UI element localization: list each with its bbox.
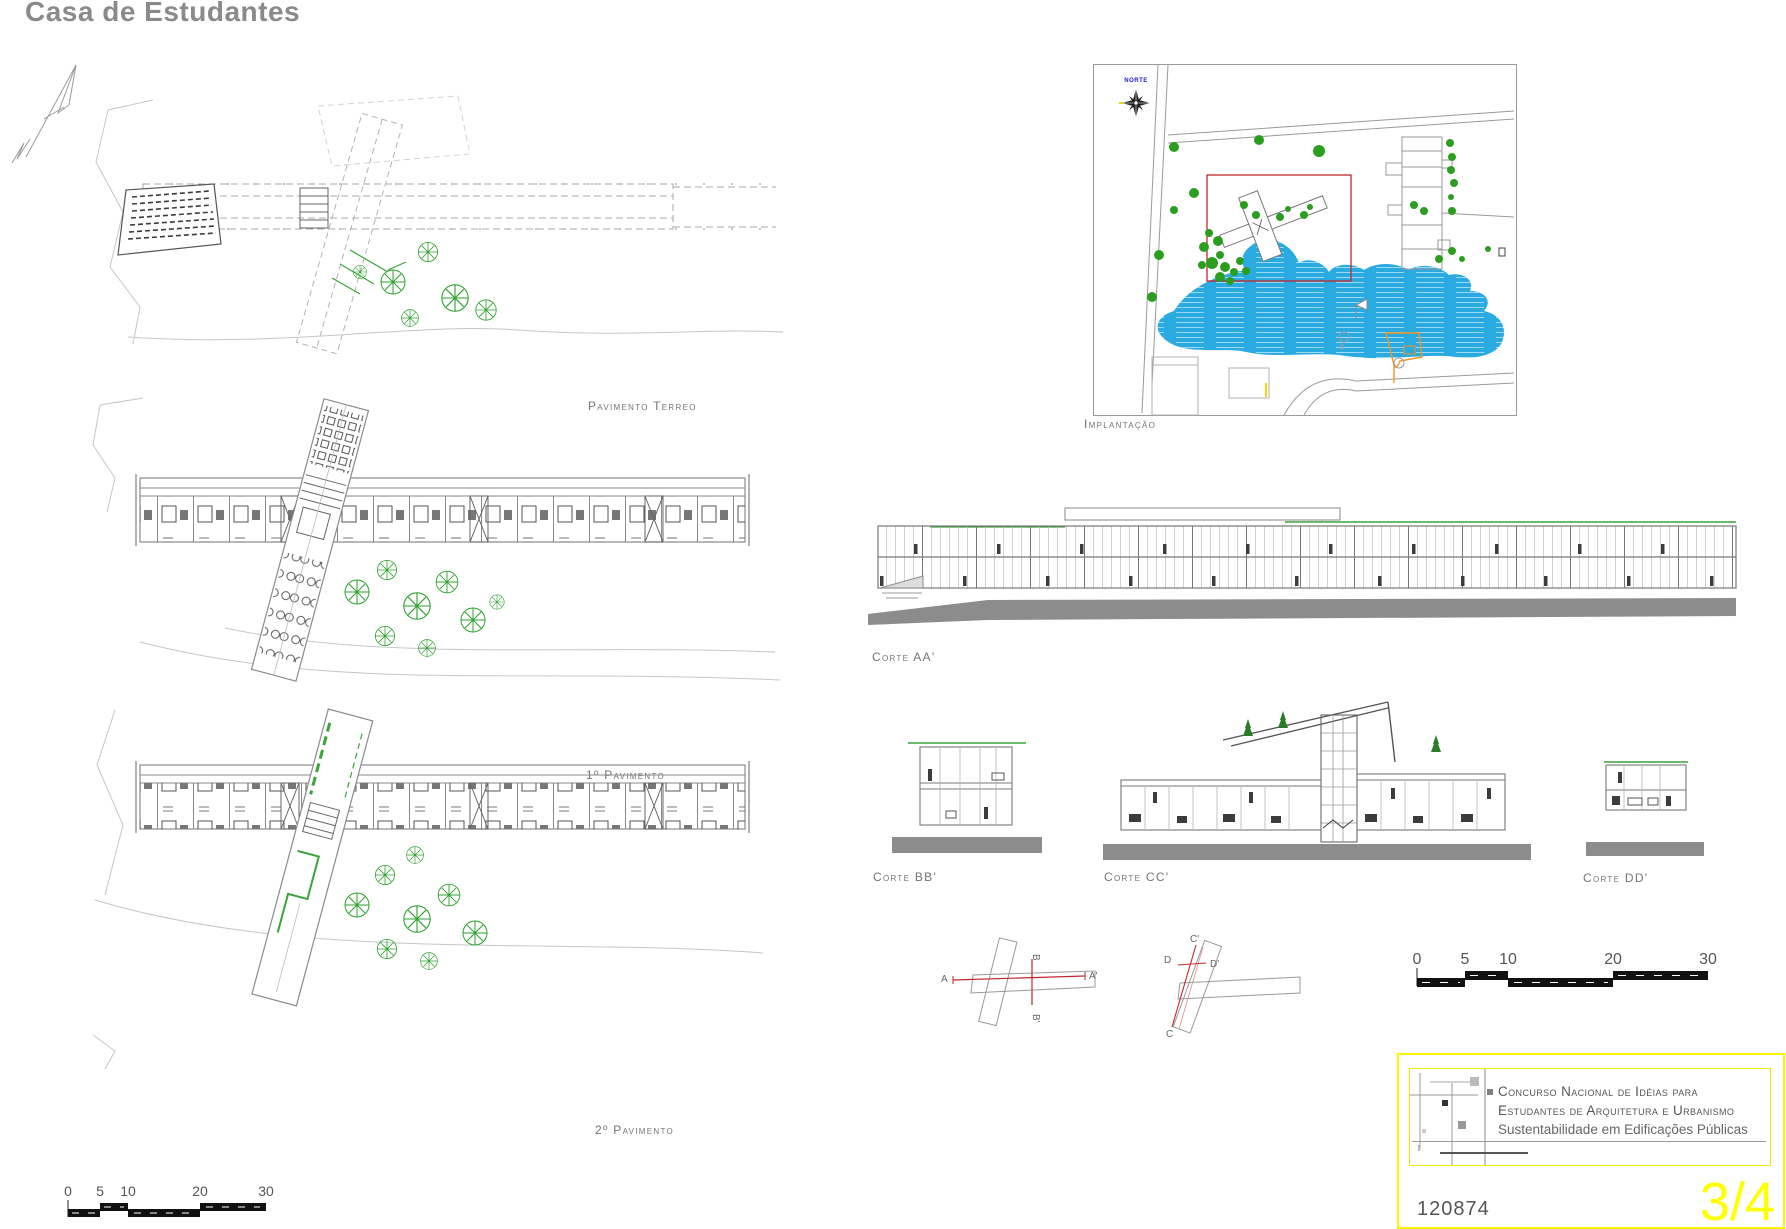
keyplan-label-d: D xyxy=(1164,955,1171,966)
competition-title-line2: Estudantes de Arquitetura e Urbanismo xyxy=(1498,1101,1766,1120)
competition-subtitle: Sustentabilidade em Edificações Públicas xyxy=(1498,1120,1766,1139)
scale-tick-0: 0 xyxy=(1413,951,1422,968)
keyplan-label-b-prime: B' xyxy=(1030,1014,1041,1023)
plan-primeiro-drawing xyxy=(85,390,785,705)
scale-tick-30: 30 xyxy=(1699,951,1717,968)
label-segundo-pavimento: 2º Pavimento xyxy=(595,1123,674,1137)
scale-tick-20: 20 xyxy=(192,1183,208,1199)
site-plan-drawing: NORTE xyxy=(1094,65,1516,415)
section-cc-drawing xyxy=(1093,688,1541,866)
competition-title-line1: Concurso Nacional de Idéias para xyxy=(1498,1082,1766,1101)
scale-tick-20: 20 xyxy=(1604,951,1622,968)
section-aa-drawing xyxy=(868,498,1748,633)
keyplan-label-a: A xyxy=(941,974,948,985)
presentation-board: Casa de Estudantes xyxy=(0,0,1786,1229)
scalebar-bottom-left: 0 5 10 20 30 xyxy=(40,1180,275,1226)
label-corte-bb: Corte BB' xyxy=(873,870,937,884)
compass-rose-icon xyxy=(1119,89,1150,117)
scale-tick-10: 10 xyxy=(120,1183,136,1199)
section-dd-drawing xyxy=(1578,738,1710,864)
keyplan-label-b: B xyxy=(1030,954,1041,961)
titleblock: Concurso Nacional de Idéias para Estudan… xyxy=(1397,1053,1785,1229)
scale-tick-0: 0 xyxy=(64,1183,72,1199)
label-corte-aa: Corte AA' xyxy=(872,650,935,664)
proposed-building-footprint xyxy=(1210,170,1337,273)
keyplan-ab: A A' B B' xyxy=(933,933,1108,1031)
existing-building xyxy=(1386,137,1452,269)
plan-segundo-drawing xyxy=(85,705,785,1085)
label-corte-cc: Corte CC' xyxy=(1104,870,1169,884)
north-label: NORTE xyxy=(1124,78,1148,84)
scalebar-right: 0 5 10 20 30 xyxy=(1408,946,1718,996)
sheet-number: 3/4 xyxy=(1700,1171,1775,1229)
titleblock-text: Concurso Nacional de Idéias para Estudan… xyxy=(1498,1082,1766,1139)
entry-code: 120874 xyxy=(1417,1198,1490,1221)
scale-tick-5: 5 xyxy=(1461,951,1470,968)
titleblock-inner: Concurso Nacional de Idéias para Estudan… xyxy=(1409,1068,1771,1166)
keyplan-label-a-prime: A' xyxy=(1089,971,1098,982)
logo-bullet xyxy=(1487,1089,1493,1095)
label-corte-dd: Corte DD' xyxy=(1583,871,1648,885)
scale-tick-30: 30 xyxy=(258,1183,274,1199)
keyplan-label-c-prime: C' xyxy=(1190,934,1199,945)
titleblock-rule xyxy=(1412,1141,1766,1142)
label-implantacao: Implantação xyxy=(1084,417,1156,431)
site-plan: NORTE xyxy=(1093,64,1517,416)
scale-tick-10: 10 xyxy=(1499,951,1517,968)
keyplan-label-c: C xyxy=(1166,1029,1173,1040)
keyplan-label-d-prime: D' xyxy=(1210,959,1219,970)
keyplan-cd: C' C D D' xyxy=(1128,933,1308,1041)
scale-tick-5: 5 xyxy=(96,1183,104,1199)
plan-terreo-drawing xyxy=(88,92,788,357)
section-bb-drawing xyxy=(888,733,1048,865)
page-title: Casa de Estudantes xyxy=(25,0,300,28)
